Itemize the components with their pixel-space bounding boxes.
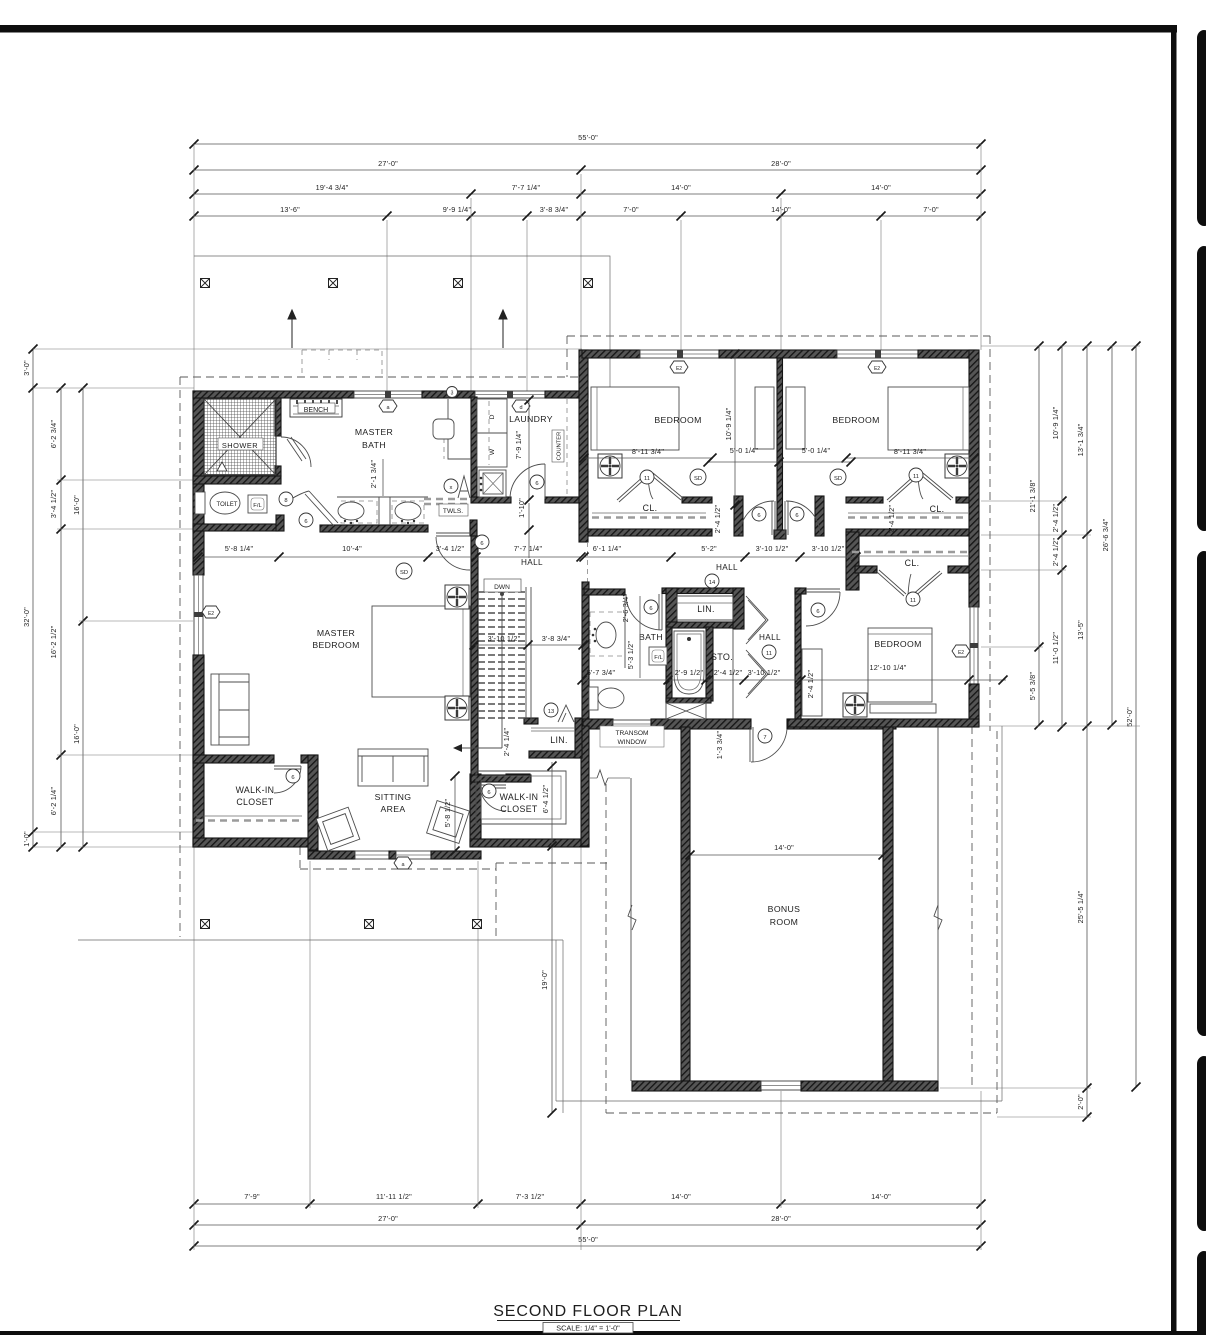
svg-text:SCALE: 1/4" = 1'-0": SCALE: 1/4" = 1'-0" (556, 1324, 620, 1333)
svg-text:12'-10 1/4": 12'-10 1/4" (869, 663, 906, 672)
svg-text:11: 11 (910, 598, 916, 604)
svg-text:10'-9 1/4": 10'-9 1/4" (1051, 406, 1060, 439)
svg-text:2'-6 3/4": 2'-6 3/4" (621, 594, 630, 623)
svg-text:32'-0": 32'-0" (22, 607, 31, 627)
svg-text:7'-7 1/4": 7'-7 1/4" (512, 183, 541, 192)
svg-text:2'-0": 2'-0" (1076, 1094, 1085, 1110)
svg-text:6: 6 (304, 519, 307, 525)
svg-text:9'-9 1/4": 9'-9 1/4" (443, 205, 472, 214)
svg-text:6'-2 1/4": 6'-2 1/4" (49, 787, 58, 816)
svg-text:6: 6 (649, 606, 652, 612)
svg-text:14'-0": 14'-0" (871, 183, 891, 192)
svg-text:1'-0": 1'-0" (22, 831, 31, 847)
svg-text:2'-9 1/2": 2'-9 1/2" (675, 668, 704, 677)
svg-text:TWLS.: TWLS. (443, 508, 463, 515)
svg-text:3'-10 1/2": 3'-10 1/2" (748, 668, 781, 677)
svg-text:6: 6 (795, 513, 798, 519)
svg-text:10'-9 1/4": 10'-9 1/4" (724, 407, 733, 440)
svg-text:WINDOW: WINDOW (618, 739, 648, 746)
svg-text:11: 11 (644, 476, 650, 482)
svg-text:11: 11 (913, 474, 919, 480)
svg-text:13'-1 3/4": 13'-1 3/4" (1076, 423, 1085, 456)
svg-text:ROOM: ROOM (770, 917, 798, 927)
svg-text:7: 7 (763, 735, 766, 741)
svg-text:6: 6 (291, 775, 294, 781)
svg-text:6: 6 (757, 513, 760, 519)
svg-text:14'-0": 14'-0" (671, 183, 691, 192)
svg-text:x: x (450, 485, 453, 491)
svg-text:8: 8 (284, 498, 287, 504)
svg-text:HALL: HALL (521, 558, 543, 567)
svg-text:MASTER: MASTER (355, 427, 393, 437)
svg-text:5'-0 1/4": 5'-0 1/4" (802, 446, 831, 455)
svg-text:13'-6": 13'-6" (280, 205, 300, 214)
svg-text:WALK-IN: WALK-IN (236, 785, 275, 795)
svg-text:BATH: BATH (639, 632, 663, 642)
svg-text:3'-10 1/2": 3'-10 1/2" (756, 544, 789, 553)
svg-text:CL.: CL. (930, 504, 945, 514)
svg-text:BEDROOM: BEDROOM (654, 415, 701, 425)
svg-text:3'-8 3/4": 3'-8 3/4" (542, 634, 571, 643)
svg-text:25'-5 1/4": 25'-5 1/4" (1076, 890, 1085, 923)
svg-text:14'-0": 14'-0" (774, 843, 794, 852)
svg-text:BENCH: BENCH (304, 407, 329, 414)
svg-text:3'-4 1/2": 3'-4 1/2" (436, 544, 465, 553)
svg-text:28'-0": 28'-0" (771, 1214, 791, 1223)
svg-text:2'-1 3/4": 2'-1 3/4" (369, 460, 378, 489)
svg-text:3: 3 (451, 391, 454, 397)
svg-text:16'-0": 16'-0" (72, 495, 81, 515)
svg-text:AREA: AREA (380, 804, 405, 814)
svg-text:CLOSET: CLOSET (500, 804, 538, 814)
svg-text:LAUNDRY: LAUNDRY (509, 414, 553, 424)
svg-text:7'-9 1/4": 7'-9 1/4" (514, 431, 523, 460)
svg-text:D: D (489, 414, 496, 419)
svg-text:6'-2 3/4": 6'-2 3/4" (49, 420, 58, 449)
svg-text:2'-4 1/2": 2'-4 1/2" (806, 670, 815, 699)
svg-text:6: 6 (487, 790, 490, 796)
svg-text:HALL: HALL (759, 633, 781, 642)
svg-text:COUNTER: COUNTER (557, 432, 563, 461)
svg-text:HALL: HALL (716, 563, 738, 572)
svg-text:21'-1 3/8": 21'-1 3/8" (1028, 479, 1037, 512)
svg-text:F/L: F/L (253, 503, 262, 509)
svg-text:5'-0 1/4": 5'-0 1/4" (730, 446, 759, 455)
svg-text:2'-4 1/2": 2'-4 1/2" (1051, 504, 1060, 533)
svg-text:SD: SD (694, 476, 702, 482)
svg-text:19'-0": 19'-0" (540, 970, 549, 990)
svg-text:2'-4 1/2": 2'-4 1/2" (714, 668, 743, 677)
svg-text:6'-4 1/2": 6'-4 1/2" (541, 785, 550, 814)
svg-text:SD: SD (400, 570, 408, 576)
svg-text:27'-0": 27'-0" (378, 1214, 398, 1223)
svg-text:52'-0": 52'-0" (1125, 707, 1134, 727)
svg-text:BEDROOM: BEDROOM (832, 415, 879, 425)
svg-text:2'-4 1/4": 2'-4 1/4" (502, 728, 511, 757)
svg-text:55'-0": 55'-0" (578, 133, 598, 142)
svg-text:5'-3 1/2": 5'-3 1/2" (626, 641, 635, 670)
svg-text:10'-4": 10'-4" (342, 544, 362, 553)
svg-text:SD: SD (834, 476, 842, 482)
svg-text:3'-10 1/2": 3'-10 1/2" (488, 634, 521, 643)
svg-text:d: d (519, 405, 522, 411)
svg-text:LIN.: LIN. (697, 604, 715, 614)
svg-text:5'-7 3/4": 5'-7 3/4" (587, 668, 616, 677)
svg-text:TRANSOM: TRANSOM (616, 730, 649, 737)
svg-text:13: 13 (548, 709, 554, 715)
svg-text:LIN.: LIN. (550, 735, 568, 745)
svg-text:BEDROOM: BEDROOM (874, 639, 921, 649)
svg-text:3'-8 3/4": 3'-8 3/4" (540, 205, 569, 214)
svg-text:WALK-IN: WALK-IN (500, 792, 539, 802)
svg-text:TOILET: TOILET (217, 502, 238, 508)
svg-text:3'-4 1/2": 3'-4 1/2" (49, 490, 58, 519)
svg-text:7'-7 1/4": 7'-7 1/4" (514, 544, 543, 553)
svg-text:11'-0 1/2": 11'-0 1/2" (1051, 632, 1060, 664)
svg-text:E2: E2 (676, 366, 682, 372)
svg-text:3'-10 1/2": 3'-10 1/2" (812, 544, 845, 553)
svg-text:7'-0": 7'-0" (923, 205, 939, 214)
svg-text:11: 11 (766, 651, 772, 657)
svg-text:2'-4 1/2": 2'-4 1/2" (887, 505, 896, 534)
svg-text:5'-8 1/2": 5'-8 1/2" (443, 799, 452, 828)
svg-text:7'-3 1/2": 7'-3 1/2" (516, 1192, 545, 1201)
svg-text:8'-11 3/4": 8'-11 3/4" (632, 447, 664, 456)
svg-text:F/L: F/L (654, 655, 663, 661)
svg-text:CL.: CL. (905, 558, 920, 568)
svg-text:7'-9": 7'-9" (244, 1192, 260, 1201)
svg-text:2'-4 1/2": 2'-4 1/2" (713, 505, 722, 534)
svg-text:STO.: STO. (711, 652, 733, 662)
svg-text:8'-11 3/4": 8'-11 3/4" (894, 447, 926, 456)
svg-text:1'-3 3/4": 1'-3 3/4" (715, 731, 724, 760)
svg-text:MASTER: MASTER (317, 628, 355, 638)
svg-text:2'-4 1/2": 2'-4 1/2" (1051, 538, 1060, 567)
svg-text:5'-5 3/8": 5'-5 3/8" (1028, 672, 1037, 701)
svg-text:16'-0": 16'-0" (72, 724, 81, 744)
svg-text:E2: E2 (208, 611, 214, 617)
svg-text:14'-0": 14'-0" (671, 1192, 691, 1201)
svg-text:SITTING: SITTING (375, 792, 412, 802)
svg-text:13'-5": 13'-5" (1076, 620, 1085, 640)
svg-text:E2: E2 (958, 650, 964, 656)
svg-text:SECOND FLOOR PLAN: SECOND FLOOR PLAN (493, 1303, 683, 1320)
svg-text:5'-2": 5'-2" (701, 544, 717, 553)
svg-text:E2: E2 (874, 366, 880, 372)
svg-text:14'-0": 14'-0" (871, 1192, 891, 1201)
svg-text:SHOWER: SHOWER (222, 441, 258, 450)
svg-text:6: 6 (816, 609, 819, 615)
svg-text:28'-0": 28'-0" (771, 159, 791, 168)
svg-text:14: 14 (709, 580, 716, 586)
svg-text:6: 6 (535, 481, 538, 487)
svg-text:26'-6 3/4": 26'-6 3/4" (1101, 518, 1110, 551)
svg-text:5'-8 1/4": 5'-8 1/4" (225, 544, 254, 553)
svg-text:BONUS: BONUS (768, 904, 801, 914)
svg-text:DWN: DWN (494, 584, 510, 591)
svg-text:W: W (489, 448, 496, 455)
svg-text:1'-10": 1'-10" (517, 498, 526, 518)
svg-text:11'-11 1/2": 11'-11 1/2" (376, 1192, 412, 1201)
svg-text:BEDROOM: BEDROOM (312, 640, 359, 650)
svg-text:CLOSET: CLOSET (236, 797, 274, 807)
svg-text:6: 6 (480, 541, 483, 547)
svg-text:19'-4 3/4": 19'-4 3/4" (316, 183, 349, 192)
svg-text:7'-0": 7'-0" (623, 205, 639, 214)
svg-text:CL.: CL. (643, 503, 658, 513)
svg-text:6'-1 1/4": 6'-1 1/4" (593, 544, 622, 553)
svg-text:27'-0": 27'-0" (378, 159, 398, 168)
svg-text:BATH: BATH (362, 440, 386, 450)
svg-text:3'-0": 3'-0" (22, 360, 31, 376)
svg-text:16'-2 1/2": 16'-2 1/2" (49, 625, 58, 658)
